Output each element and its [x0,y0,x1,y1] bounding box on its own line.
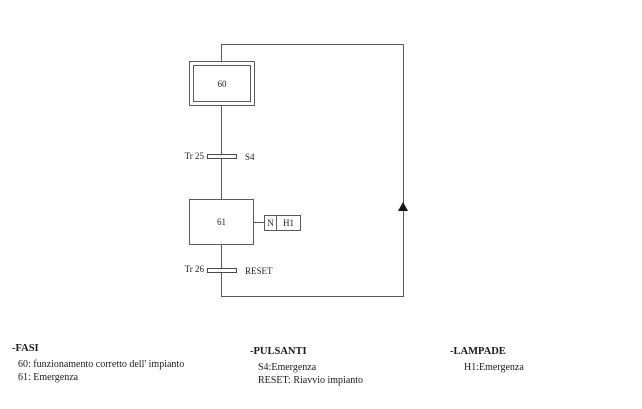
legend-fasi-item-60: 60: funzionamento corretto dell' impiant… [18,358,184,371]
action-variable-cell: H1 [277,216,300,230]
transition-tr26-bar [207,268,237,273]
action-qualifier-cell: N [265,216,277,230]
action-link-line [254,222,264,223]
legend-lampade-title: -LAMPADE [450,346,524,358]
transition-tr26-name: Tr 26 [176,264,204,274]
step-61-label: 61 [217,217,226,227]
transition-tr25-bar [207,154,237,159]
feedback-top-line [221,44,404,45]
transition-tr25-condition: S4 [245,152,255,162]
grafcet-diagram-canvas: 60 Tr 25 S4 61 N H1 Tr 26 RESET -FASI 60… [0,0,642,409]
initial-step-60-inner-border: 60 [193,65,251,102]
legend-lampade: -LAMPADE H1:Emergenza [450,346,524,374]
legend-fasi-title: -FASI [12,343,184,355]
legend-pulsanti-item-reset: RESET: Riavvio impianto [258,374,363,387]
legend-pulsanti-title: -PULSANTI [250,346,363,358]
transition-tr26-condition: RESET [245,266,273,276]
legend-pulsanti: -PULSANTI S4:Emergenza RESET: Riavvio im… [250,346,363,387]
legend-lampade-item-h1: H1:Emergenza [464,361,524,374]
feedback-bottom-line [221,296,404,297]
transition-tr25-name: Tr 25 [176,151,204,161]
legend-pulsanti-item-s4: S4:Emergenza [258,361,363,374]
feedback-right-line [403,44,404,297]
flow-direction-arrow-icon [398,202,408,211]
legend-fasi: -FASI 60: funzionamento corretto dell' i… [12,343,184,384]
action-box: N H1 [264,215,301,231]
initial-step-60: 60 [189,61,255,106]
step-61: 61 [189,199,254,245]
legend-fasi-item-61: 61: Emergenza [18,371,184,384]
initial-step-60-label: 60 [218,79,227,89]
link-step60-to-step61 [221,105,222,200]
link-top-to-step60 [221,44,222,62]
